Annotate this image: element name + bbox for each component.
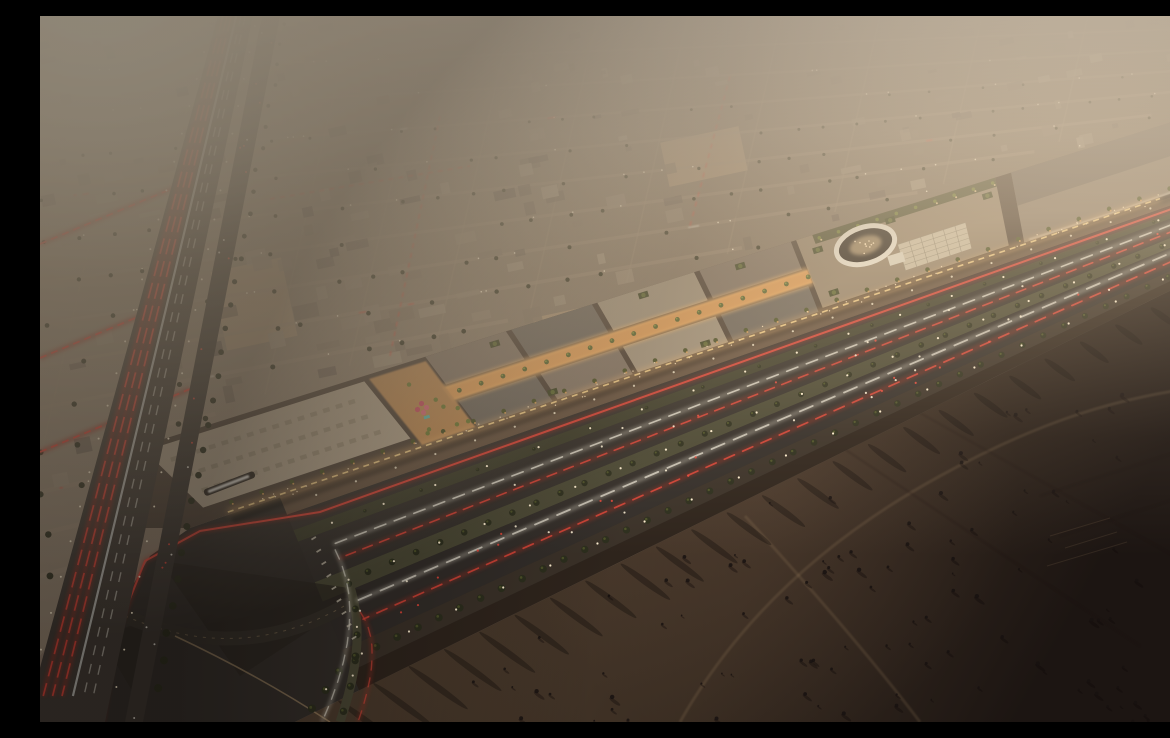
aerial-render: Aerial dusk rendering: an illuminated op… — [40, 16, 1170, 722]
scene-svg — [40, 16, 1170, 722]
vignette — [40, 16, 1170, 722]
